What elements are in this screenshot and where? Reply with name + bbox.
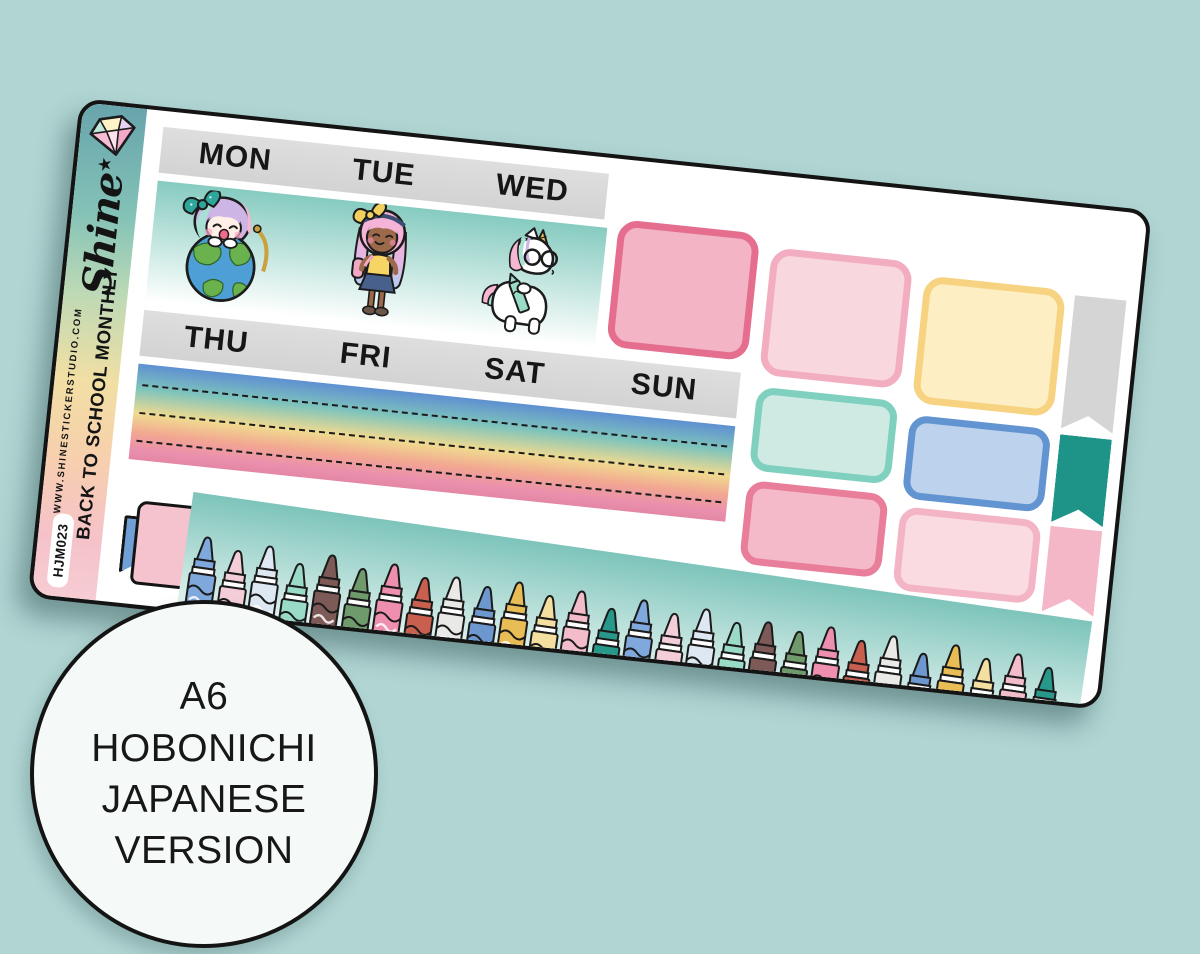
size-badge-line: HOBONICHI — [91, 723, 317, 774]
day-label: WED — [456, 164, 608, 213]
full-box-yellow — [912, 275, 1067, 417]
star-icon: ★ — [95, 158, 114, 172]
unicorn-sticker — [474, 221, 581, 340]
dashed-writing-line — [139, 412, 724, 475]
product-photo: Shine★ BACK TO SCHOOL MONTHLY WWW.SHINES… — [0, 0, 1200, 954]
flag-sticker-pink — [1042, 526, 1103, 617]
dashed-writing-line — [136, 440, 721, 503]
half-box-mint — [749, 386, 899, 484]
size-badge: A6HOBONICHIJAPANESEVERSION — [30, 600, 378, 948]
school-girl-sticker — [337, 201, 423, 324]
full-box-light-pink — [759, 247, 914, 389]
half-box-pink — [739, 480, 889, 578]
globe-girl-sticker — [172, 187, 281, 309]
half-box-blue — [902, 415, 1052, 513]
half-box-pale-pink — [892, 506, 1042, 604]
full-box-rose — [606, 219, 761, 361]
day-label: SUN — [588, 363, 741, 412]
day-label: FRI — [289, 332, 442, 381]
day-label: MON — [159, 133, 311, 182]
day-label: SAT — [438, 347, 591, 396]
sku-label: HJM023 — [46, 513, 75, 589]
diamond-icon — [86, 111, 140, 161]
day-label: TUE — [308, 148, 460, 197]
size-badge-line: JAPANESE — [91, 774, 317, 825]
size-badge-line: A6 — [91, 671, 317, 722]
flag-sticker-teal — [1051, 434, 1112, 527]
size-badge-line: VERSION — [91, 825, 317, 876]
crayon-sticker — [929, 640, 971, 710]
flag-sticker-gray — [1061, 295, 1127, 434]
size-badge-text: A6HOBONICHIJAPANESEVERSION — [91, 671, 317, 877]
day-label: THU — [140, 316, 293, 365]
